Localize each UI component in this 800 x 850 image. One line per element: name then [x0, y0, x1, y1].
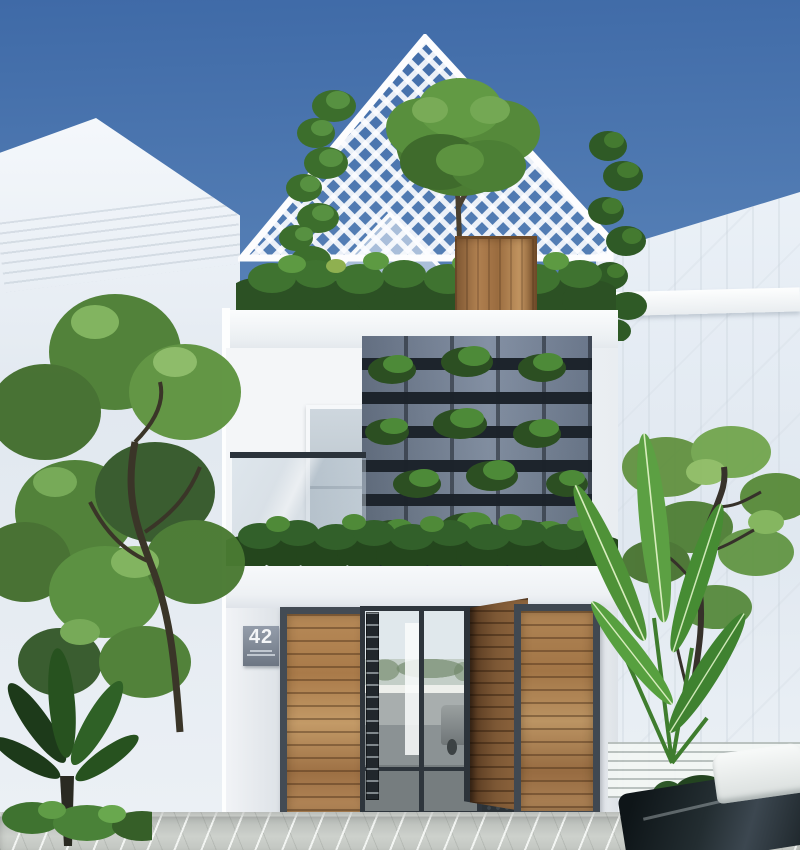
terrace-tree: [360, 70, 575, 255]
corner-plant-left: [0, 628, 152, 850]
scene-render: 42: [0, 0, 800, 850]
plaque-subtext-line: [250, 650, 272, 652]
door-mullion: [419, 611, 424, 811]
banana-plant: [572, 428, 762, 768]
door-bottom-rail: [365, 767, 477, 771]
entrance-hedge: [226, 508, 618, 572]
door-hinge-strip: [366, 612, 379, 800]
door-reflection-pillar: [405, 623, 420, 755]
wooden-gate-left: [280, 607, 372, 820]
